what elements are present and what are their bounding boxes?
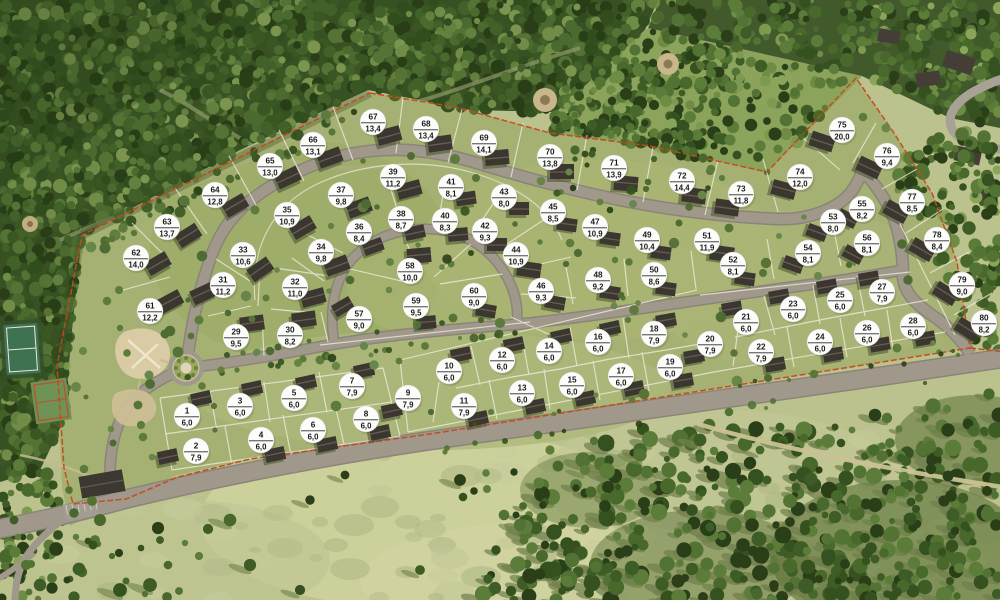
svg-text:37: 37: [336, 186, 346, 195]
svg-text:13,8: 13,8: [542, 160, 558, 169]
svg-text:6,0: 6,0: [444, 374, 456, 383]
svg-text:47: 47: [590, 218, 600, 227]
svg-text:66: 66: [308, 136, 318, 145]
svg-text:30: 30: [285, 326, 295, 335]
svg-text:7,9: 7,9: [756, 355, 768, 364]
svg-text:42: 42: [480, 222, 490, 231]
svg-text:8,7: 8,7: [396, 222, 407, 231]
svg-text:44: 44: [511, 246, 521, 255]
svg-text:22: 22: [756, 343, 766, 352]
svg-text:48: 48: [593, 271, 603, 280]
svg-text:12: 12: [497, 351, 507, 360]
svg-text:14,0: 14,0: [128, 261, 144, 270]
svg-text:60: 60: [469, 287, 479, 296]
svg-text:12,2: 12,2: [142, 314, 158, 323]
svg-text:31: 31: [218, 276, 228, 285]
svg-text:70: 70: [545, 148, 555, 157]
svg-text:9,0: 9,0: [957, 288, 969, 297]
svg-text:59: 59: [411, 297, 421, 306]
svg-text:8,1: 8,1: [862, 246, 874, 255]
svg-text:26: 26: [862, 324, 872, 333]
svg-text:8,1: 8,1: [446, 190, 458, 199]
svg-text:13,0: 13,0: [262, 169, 278, 178]
svg-text:58: 58: [405, 262, 415, 271]
svg-text:8,3: 8,3: [440, 224, 452, 233]
svg-text:51: 51: [702, 232, 712, 241]
svg-text:15: 15: [567, 376, 577, 385]
svg-text:8: 8: [364, 410, 369, 419]
svg-text:10,9: 10,9: [587, 230, 603, 239]
svg-text:45: 45: [548, 203, 558, 212]
svg-text:46: 46: [536, 282, 546, 291]
svg-text:72: 72: [677, 172, 687, 181]
svg-text:2: 2: [194, 442, 199, 451]
svg-text:14,1: 14,1: [476, 146, 492, 155]
svg-text:10,9: 10,9: [279, 218, 295, 227]
svg-text:6,0: 6,0: [497, 363, 509, 372]
svg-text:1: 1: [185, 407, 190, 416]
svg-text:76: 76: [882, 147, 892, 156]
svg-text:50: 50: [649, 266, 659, 275]
svg-text:6,0: 6,0: [182, 419, 194, 428]
svg-text:8,2: 8,2: [285, 338, 297, 347]
svg-text:29: 29: [231, 328, 241, 337]
svg-text:9,2: 9,2: [593, 283, 605, 292]
svg-text:57: 57: [354, 310, 364, 319]
svg-text:9,3: 9,3: [480, 234, 492, 243]
svg-text:63: 63: [162, 218, 172, 227]
svg-text:41: 41: [446, 178, 456, 187]
svg-text:32: 32: [290, 278, 300, 287]
svg-text:6: 6: [311, 421, 316, 430]
svg-text:65: 65: [265, 157, 275, 166]
svg-text:6,0: 6,0: [835, 303, 847, 312]
svg-text:7,9: 7,9: [459, 409, 471, 418]
svg-text:6,0: 6,0: [567, 388, 579, 397]
svg-text:68: 68: [421, 120, 431, 129]
svg-text:9,5: 9,5: [411, 309, 423, 318]
svg-text:24: 24: [815, 333, 825, 342]
svg-text:9,8: 9,8: [336, 198, 348, 207]
svg-text:11,2: 11,2: [216, 288, 231, 297]
svg-text:8,4: 8,4: [354, 235, 366, 244]
svg-text:71: 71: [609, 159, 619, 168]
svg-text:7,9: 7,9: [705, 347, 717, 356]
svg-text:8,0: 8,0: [499, 200, 511, 209]
svg-text:73: 73: [736, 185, 746, 194]
svg-text:6,0: 6,0: [788, 312, 800, 321]
svg-text:36: 36: [354, 223, 364, 232]
svg-text:6,0: 6,0: [741, 325, 753, 334]
svg-text:9,3: 9,3: [536, 294, 548, 303]
svg-text:10,4: 10,4: [639, 243, 655, 252]
svg-text:43: 43: [499, 188, 509, 197]
svg-text:10,6: 10,6: [235, 258, 251, 267]
svg-text:13: 13: [517, 384, 527, 393]
svg-text:6,0: 6,0: [665, 370, 677, 379]
svg-text:52: 52: [728, 256, 738, 265]
svg-text:11: 11: [460, 397, 469, 406]
svg-text:79: 79: [957, 276, 967, 285]
svg-text:14,4: 14,4: [674, 184, 690, 193]
svg-text:8,2: 8,2: [857, 212, 869, 221]
svg-text:12,8: 12,8: [207, 198, 223, 207]
svg-text:67: 67: [368, 113, 378, 122]
svg-text:53: 53: [828, 213, 838, 222]
svg-text:9,0: 9,0: [469, 299, 481, 308]
svg-text:3: 3: [238, 397, 243, 406]
svg-text:75: 75: [837, 121, 847, 130]
svg-text:9: 9: [406, 389, 411, 398]
svg-text:11,2: 11,2: [386, 180, 401, 189]
svg-text:6,0: 6,0: [256, 443, 268, 452]
svg-text:7,9: 7,9: [191, 454, 203, 463]
svg-text:34: 34: [316, 243, 326, 252]
svg-text:13,4: 13,4: [418, 132, 434, 141]
svg-text:38: 38: [396, 210, 406, 219]
svg-text:78: 78: [932, 231, 942, 240]
svg-text:8,5: 8,5: [907, 205, 919, 214]
svg-text:13,7: 13,7: [159, 230, 174, 239]
svg-text:4: 4: [259, 431, 264, 440]
svg-text:10,0: 10,0: [402, 274, 418, 283]
svg-text:14: 14: [544, 342, 554, 351]
svg-text:13,1: 13,1: [305, 148, 321, 157]
svg-text:6,0: 6,0: [544, 354, 556, 363]
svg-text:33: 33: [238, 246, 248, 255]
svg-text:23: 23: [788, 300, 798, 309]
svg-text:21: 21: [741, 313, 751, 322]
svg-text:8,2: 8,2: [979, 326, 991, 335]
svg-text:9,5: 9,5: [231, 340, 243, 349]
svg-text:39: 39: [388, 168, 398, 177]
svg-text:7,9: 7,9: [403, 401, 415, 410]
svg-text:13,4: 13,4: [365, 125, 381, 134]
svg-text:17: 17: [616, 367, 626, 376]
svg-text:35: 35: [282, 206, 292, 215]
svg-text:54: 54: [803, 244, 813, 253]
svg-text:13,9: 13,9: [606, 171, 622, 180]
svg-text:6,0: 6,0: [908, 329, 920, 338]
svg-text:49: 49: [642, 231, 652, 240]
svg-text:64: 64: [210, 186, 220, 195]
svg-text:20: 20: [705, 335, 715, 344]
svg-text:11,0: 11,0: [288, 290, 303, 299]
svg-text:7,9: 7,9: [347, 389, 359, 398]
svg-text:19: 19: [665, 358, 675, 367]
svg-text:6,0: 6,0: [517, 396, 529, 405]
svg-text:8,6: 8,6: [649, 278, 661, 287]
svg-text:61: 61: [145, 302, 155, 311]
svg-text:56: 56: [862, 234, 872, 243]
svg-text:28: 28: [908, 317, 918, 326]
svg-text:6,0: 6,0: [308, 433, 320, 442]
svg-text:8,1: 8,1: [728, 268, 740, 277]
svg-text:7: 7: [350, 377, 355, 386]
svg-text:5: 5: [292, 389, 297, 398]
svg-text:8,0: 8,0: [828, 225, 840, 234]
svg-text:62: 62: [131, 249, 141, 258]
svg-text:8,1: 8,1: [803, 256, 815, 265]
svg-text:77: 77: [907, 193, 917, 202]
svg-text:80: 80: [979, 314, 989, 323]
svg-text:9,0: 9,0: [354, 322, 366, 331]
svg-text:8,4: 8,4: [932, 243, 944, 252]
svg-text:6,0: 6,0: [289, 401, 301, 410]
svg-text:10: 10: [444, 362, 454, 371]
svg-text:6,0: 6,0: [361, 422, 373, 431]
svg-text:6,0: 6,0: [815, 345, 827, 354]
svg-text:6,0: 6,0: [616, 379, 628, 388]
svg-text:7,9: 7,9: [877, 295, 889, 304]
svg-text:8,5: 8,5: [548, 215, 560, 224]
svg-text:25: 25: [835, 291, 845, 300]
svg-text:55: 55: [857, 200, 867, 209]
svg-text:6,0: 6,0: [862, 336, 874, 345]
svg-text:10,9: 10,9: [508, 258, 524, 267]
svg-text:9,8: 9,8: [316, 255, 328, 264]
svg-text:6,0: 6,0: [235, 409, 247, 418]
svg-text:20,0: 20,0: [834, 133, 850, 142]
svg-text:11,8: 11,8: [734, 197, 749, 206]
svg-text:18: 18: [649, 325, 659, 334]
svg-text:11,9: 11,9: [700, 244, 715, 253]
svg-text:40: 40: [440, 212, 450, 221]
svg-text:12,0: 12,0: [792, 180, 808, 189]
svg-text:6,0: 6,0: [593, 345, 605, 354]
svg-text:27: 27: [877, 283, 887, 292]
svg-text:69: 69: [479, 134, 489, 143]
svg-text:16: 16: [593, 333, 603, 342]
svg-text:74: 74: [795, 168, 805, 177]
svg-text:7,9: 7,9: [649, 337, 661, 346]
svg-text:9,4: 9,4: [882, 159, 894, 168]
